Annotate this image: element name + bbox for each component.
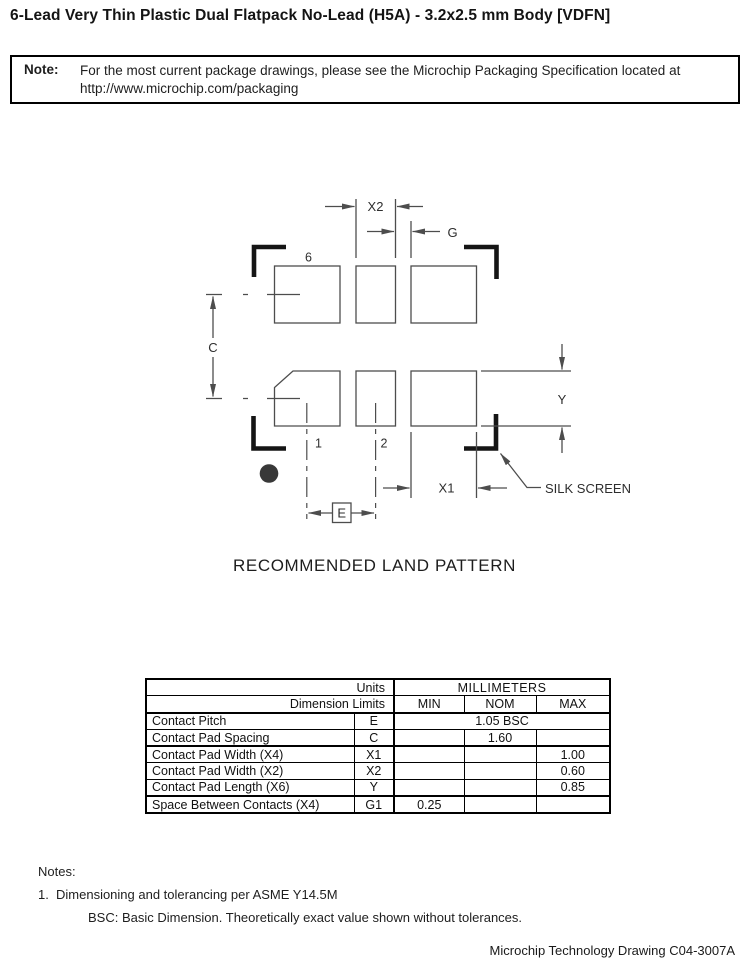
dim-g-label: G <box>447 225 457 240</box>
table-row: Contact Pad Length (X6) Y 0.85 <box>146 779 610 796</box>
table-row: Contact Pitch E 1.05 BSC <box>146 713 610 730</box>
dimension-limits-cell: Dimension Limits <box>146 696 394 713</box>
dim-x1-label: X1 <box>439 481 455 496</box>
dim-c-label: C <box>208 340 217 355</box>
pad-number-1: 1 <box>315 437 322 451</box>
document-page: 6-Lead Very Thin Plastic Dual Flatpack N… <box>0 0 749 965</box>
drawing-caption: RECOMMENDED LAND PATTERN <box>0 556 749 576</box>
dim-symbol-cell: X2 <box>354 763 394 779</box>
note-item-1-number: 1. <box>38 887 56 902</box>
dim-e-label: E <box>337 506 346 521</box>
dim-nom-cell <box>464 746 536 763</box>
pad-number-6: 6 <box>305 251 312 265</box>
dimension-g <box>367 221 440 258</box>
pad-top-right <box>411 266 477 323</box>
dim-nom-cell <box>464 763 536 779</box>
dim-min-cell <box>394 779 464 796</box>
pad-number-2: 2 <box>381 437 388 451</box>
table-header-row-units: Units MILLIMETERS <box>146 679 610 696</box>
dim-max-cell <box>536 796 610 813</box>
pad-top-middle <box>356 266 396 323</box>
dim-name-cell: Contact Pad Length (X6) <box>146 779 354 796</box>
millimeters-cell: MILLIMETERS <box>394 679 610 696</box>
dim-max-cell: 1.00 <box>536 746 610 763</box>
dim-name-cell: Contact Pad Width (X4) <box>146 746 354 763</box>
dim-max-cell: 0.85 <box>536 779 610 796</box>
dim-min-cell <box>394 763 464 779</box>
min-header-cell: MIN <box>394 696 464 713</box>
table-row: Contact Pad Width (X2) X2 0.60 <box>146 763 610 779</box>
dim-symbol-cell: E <box>354 713 394 730</box>
dim-symbol-cell: X1 <box>354 746 394 763</box>
silk-screen-label: SILK SCREEN <box>545 481 631 496</box>
silk-screen-leader <box>501 454 542 488</box>
pad-bottom-right <box>411 371 477 426</box>
max-header-cell: MAX <box>536 696 610 713</box>
pin1-indicator-dot <box>260 464 279 483</box>
land-pattern-drawing: C X2 G Y X1 <box>0 0 749 965</box>
dim-nom-cell: 1.60 <box>464 729 536 746</box>
dim-name-cell: Contact Pad Width (X2) <box>146 763 354 779</box>
dimension-table: Units MILLIMETERS Dimension Limits MIN N… <box>145 678 611 814</box>
note-item-1: 1.Dimensioning and tolerancing per ASME … <box>38 887 338 902</box>
table-row: Space Between Contacts (X4) G1 0.25 <box>146 796 610 813</box>
dim-y-label: Y <box>558 392 567 407</box>
dim-symbol-cell: C <box>354 729 394 746</box>
table-row: Contact Pad Width (X4) X1 1.00 <box>146 746 610 763</box>
note-item-1-text: Dimensioning and tolerancing per ASME Y1… <box>56 887 338 902</box>
dim-symbol-cell: Y <box>354 779 394 796</box>
dim-x2-label: X2 <box>368 199 384 214</box>
dim-span-value-cell: 1.05 BSC <box>394 713 610 730</box>
dim-name-cell: Contact Pad Spacing <box>146 729 354 746</box>
table-header-row-limits: Dimension Limits MIN NOM MAX <box>146 696 610 713</box>
dim-name-cell: Contact Pitch <box>146 713 354 730</box>
dim-symbol-cell: G1 <box>354 796 394 813</box>
dim-min-cell <box>394 746 464 763</box>
note-item-1-sub: BSC: Basic Dimension. Theoretically exac… <box>88 910 522 925</box>
dim-nom-cell <box>464 779 536 796</box>
dim-min-cell: 0.25 <box>394 796 464 813</box>
nom-header-cell: NOM <box>464 696 536 713</box>
notes-heading: Notes: <box>38 864 76 879</box>
drawing-number-footer: Microchip Technology Drawing C04-3007A <box>490 943 735 958</box>
dim-max-cell: 0.60 <box>536 763 610 779</box>
units-label-cell: Units <box>146 679 394 696</box>
dimension-table-grid: Units MILLIMETERS Dimension Limits MIN N… <box>145 678 611 814</box>
dim-nom-cell <box>464 796 536 813</box>
table-row: Contact Pad Spacing C 1.60 <box>146 729 610 746</box>
dim-name-cell: Space Between Contacts (X4) <box>146 796 354 813</box>
dim-min-cell <box>394 729 464 746</box>
dim-max-cell <box>536 729 610 746</box>
